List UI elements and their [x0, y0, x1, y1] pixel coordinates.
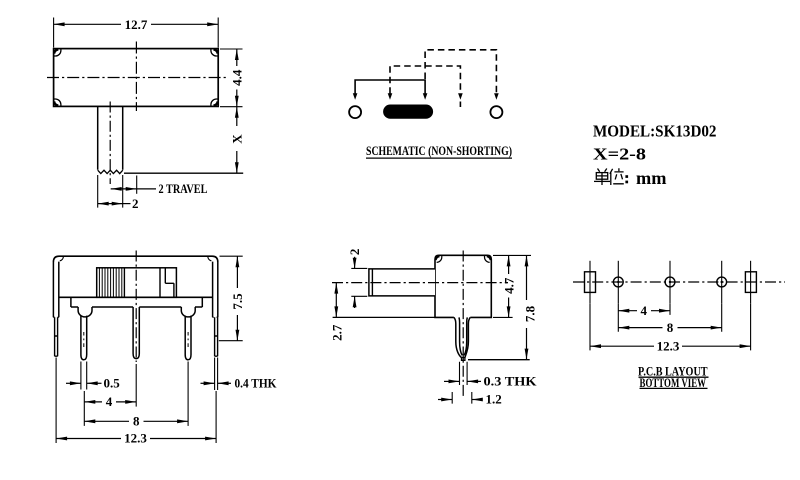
svg-text:4: 4 [641, 303, 648, 318]
svg-text:X=2-8: X=2-8 [593, 145, 646, 164]
svg-text:0.3 THK: 0.3 THK [484, 374, 538, 389]
svg-text:4.7: 4.7 [501, 277, 516, 294]
svg-text:0.4 THK: 0.4 THK [235, 376, 278, 391]
svg-text:7.5: 7.5 [230, 293, 245, 310]
svg-text:MODEL:SK13D02: MODEL:SK13D02 [593, 122, 717, 141]
svg-text:0.5: 0.5 [104, 376, 121, 391]
svg-text:X: X [229, 134, 244, 144]
svg-text:2: 2 [132, 196, 139, 211]
svg-text:12.3: 12.3 [657, 338, 680, 353]
svg-text:12.7: 12.7 [125, 17, 148, 32]
svg-text:7.8: 7.8 [522, 305, 537, 322]
svg-text:12.3: 12.3 [124, 431, 147, 446]
svg-text:8: 8 [133, 414, 140, 429]
svg-text:2.7: 2.7 [329, 324, 344, 341]
svg-text:4: 4 [106, 394, 113, 409]
svg-text:1.2: 1.2 [486, 392, 502, 407]
svg-text:8: 8 [667, 320, 674, 335]
svg-text:4.4: 4.4 [229, 69, 244, 86]
svg-text:2: 2 [347, 249, 362, 256]
svg-text:SCHEMATIC (NON-SHORTING): SCHEMATIC (NON-SHORTING) [366, 144, 512, 158]
svg-text:mm: mm [636, 168, 667, 188]
svg-text:2 TRAVEL: 2 TRAVEL [159, 182, 208, 196]
